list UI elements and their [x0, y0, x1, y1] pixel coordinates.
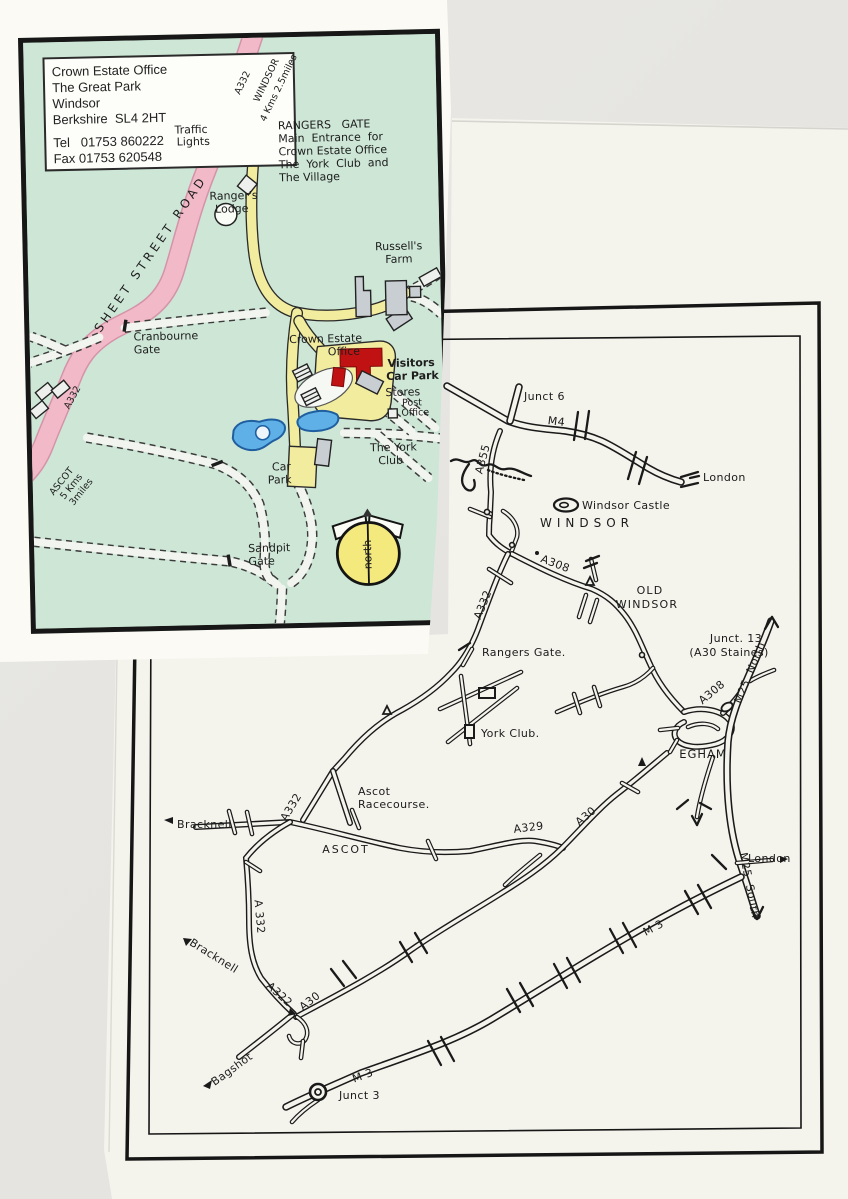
- label-egham: EGHAM: [679, 747, 727, 761]
- address-box: Crown Estate Office The Great Park Winds…: [43, 53, 295, 170]
- label-racecourse-2: Racecourse.: [358, 798, 430, 811]
- label-m3-west: M 3: [351, 1066, 375, 1085]
- estate-map: north Crown Estate Office The Great Park…: [23, 34, 448, 629]
- york-club-building-icon: [465, 725, 474, 738]
- address-phone: Tel 01753 860222: [53, 133, 164, 150]
- car-park-area: [287, 446, 317, 487]
- label-bracknell-south: Bracknell: [187, 936, 240, 976]
- address-line-4: Berkshire SL4 2HT: [53, 110, 167, 127]
- label-rangers-gate-4: The York Club and: [278, 156, 389, 171]
- map1-document: north Crown Estate Office The Great Park…: [0, 0, 452, 662]
- label-windsor-town: WINDSOR: [540, 516, 634, 530]
- junction3-roundabout-icon: [310, 1084, 326, 1100]
- address-line-2: The Great Park: [52, 78, 142, 95]
- address-line-3: Windsor: [52, 95, 101, 111]
- label-windsor-castle: Windsor Castle: [582, 499, 670, 512]
- label-a332-north: A332: [471, 588, 494, 621]
- label-a332-south: A 332: [252, 899, 268, 934]
- scanned-page: Junct 6 M4 London A355 Windsor Castle WI…: [0, 0, 848, 1199]
- label-bracknell-west: Bracknell: [177, 818, 232, 831]
- york-club-building: [315, 439, 332, 466]
- farm-building: [385, 281, 407, 315]
- office-annex-building: [331, 367, 345, 386]
- label-london-m4: London: [703, 471, 746, 484]
- label-racecourse-1: Ascot: [358, 785, 391, 798]
- label-rangers-gate-5: The Village: [278, 170, 340, 184]
- label-junct6: Junct 6: [523, 390, 565, 403]
- label-york-1: The York: [369, 440, 418, 454]
- label-a322: A322: [264, 979, 295, 1009]
- label-old-windsor-1: OLD: [637, 584, 664, 597]
- label-visitors-1: Visitors: [387, 356, 435, 370]
- label-old-windsor-2: WINDSOR: [616, 598, 679, 611]
- label-bagshot: Bagshot: [209, 1050, 256, 1089]
- label-a308-egham: A308: [696, 678, 727, 707]
- label-farm-1: Russell's: [375, 239, 423, 253]
- label-lodge-2: Lodge: [215, 202, 249, 216]
- label-a329: A329: [513, 819, 544, 836]
- label-sandpit-2: Gate: [248, 555, 275, 569]
- label-a332-mid: A332: [278, 791, 305, 824]
- label-junct3: Junct 3: [338, 1089, 380, 1102]
- label-ascot: ASCOT: [322, 843, 370, 856]
- label-m4: M4: [547, 414, 566, 429]
- label-cranbourne-1: Cranbourne: [133, 329, 198, 343]
- label-rangers-gate: Rangers Gate.: [482, 646, 566, 659]
- map1-frame: north Crown Estate Office The Great Park…: [18, 29, 453, 634]
- address-fax: Fax 01753 620548: [53, 149, 162, 166]
- paper-edge: [452, 121, 848, 129]
- label-york-club: York Club.: [480, 727, 540, 740]
- label-car-2: Park: [268, 473, 293, 487]
- label-visitors-2: Car Park: [386, 369, 440, 383]
- west-arrow-icon: [164, 817, 173, 824]
- label-crown-estate-2: Office: [328, 345, 361, 359]
- farm-building: [410, 286, 421, 297]
- address-line-1: Crown Estate Office: [52, 62, 168, 80]
- pond-island-icon: [256, 426, 270, 440]
- paper-edge: [109, 655, 117, 1152]
- label-sandpit-1: Sandpit: [248, 541, 291, 555]
- label-post-2: Office: [401, 407, 429, 419]
- label-lodge-1: Ranger's: [209, 189, 258, 203]
- label-north: north: [361, 540, 375, 570]
- label-farm-2: Farm: [385, 252, 412, 266]
- post-office-building: [388, 409, 397, 418]
- label-york-2: Club: [378, 454, 403, 468]
- label-london-m25: London: [748, 852, 791, 865]
- label-car-1: Car: [272, 460, 292, 473]
- windsor-castle-icon: [554, 499, 578, 512]
- london-dash-icon: [690, 476, 699, 478]
- label-cranbourne-2: Gate: [134, 343, 161, 357]
- label-traffic-2: Lights: [177, 135, 211, 149]
